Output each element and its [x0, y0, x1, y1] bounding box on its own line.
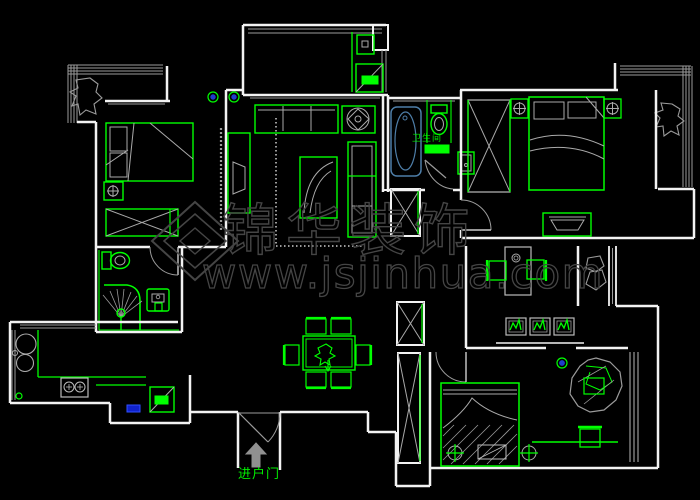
desk3-chair — [580, 429, 600, 447]
sink2 — [147, 289, 169, 311]
dining-chair — [306, 319, 326, 334]
bedroom3-door-arc — [436, 352, 466, 382]
bed1-pillow — [110, 127, 127, 151]
dining-table-inner — [306, 339, 352, 367]
dining-chair — [285, 345, 299, 365]
washer2-mark — [362, 76, 378, 84]
master-bed-fold — [530, 135, 604, 146]
master-pillow — [534, 102, 564, 119]
floorplan-svg: 锦华装饰 www.jsjinhua.com 卫生间 进户门 — [0, 0, 700, 500]
watermark-url: www.jsjinhua.com — [202, 249, 604, 298]
wall-lamp-dot — [211, 95, 215, 99]
bed3-plant-chord — [578, 366, 606, 382]
bed3-wave — [443, 398, 517, 428]
sink2-dot — [156, 295, 160, 299]
pot-blue-dot — [560, 361, 565, 366]
bathroom-label: 卫生间 — [412, 132, 442, 144]
wall-lamp-dot — [232, 95, 236, 99]
master-bed-fold — [530, 147, 604, 159]
bed3-plant-chord — [584, 380, 614, 404]
stool-sprout — [558, 320, 569, 330]
bed1-fold — [150, 123, 193, 159]
dining-centerpiece — [315, 344, 335, 365]
dining-chair — [331, 319, 351, 334]
entrance-arrow — [246, 443, 266, 467]
bed1-frame — [106, 123, 193, 181]
kitchen-blue-item — [127, 405, 140, 412]
floor-drain — [16, 393, 22, 399]
bath1-door-leaf — [425, 160, 446, 178]
toilet2-bowl-inner — [435, 118, 444, 131]
stool-sprout — [510, 320, 521, 330]
kitchen-sink-bowl — [17, 355, 34, 372]
toilet1-tank — [102, 252, 111, 269]
master-tv-cabinet — [543, 213, 591, 236]
dining-chair — [331, 372, 351, 387]
washer1-knob — [362, 41, 368, 47]
bed1-fold — [106, 150, 128, 165]
toilet2-tank — [431, 105, 447, 113]
stove — [61, 378, 88, 397]
stool-sprout — [534, 320, 545, 330]
bed1-fold — [128, 123, 134, 181]
side-table-fan — [355, 116, 361, 122]
toilet1-bowl — [111, 253, 130, 269]
master-bed-fold — [586, 97, 604, 118]
bed3-hatch — [499, 446, 517, 464]
dining-chair — [306, 372, 326, 387]
balcony1-plant — [70, 78, 102, 115]
cabinet-small-dot — [465, 164, 468, 167]
bed3-plant — [570, 358, 622, 412]
toilet2-bowl — [431, 114, 447, 135]
entrance-door-arc — [268, 412, 280, 442]
entrance-label: 进户门 — [238, 466, 280, 482]
fridge-mark — [155, 396, 168, 404]
master-tv — [551, 220, 584, 230]
tv-living — [233, 162, 245, 194]
washer1 — [357, 35, 374, 54]
floorplan-stage: 锦华装饰 www.jsjinhua.com 卫生间 进户门 — [0, 0, 700, 500]
bath1-mat — [425, 145, 449, 153]
toilet1-bowl-inner — [115, 256, 125, 265]
master-bed — [529, 97, 604, 190]
entrance-door-leaf — [238, 412, 268, 442]
balcony3-plant — [655, 103, 684, 136]
kitchen-sink-bowl — [16, 334, 36, 354]
sink2-tap — [155, 303, 162, 311]
bathtub-drain — [403, 116, 407, 120]
side-table-fan — [347, 108, 369, 130]
sofa-top — [255, 105, 338, 133]
dining-chair — [356, 345, 370, 365]
